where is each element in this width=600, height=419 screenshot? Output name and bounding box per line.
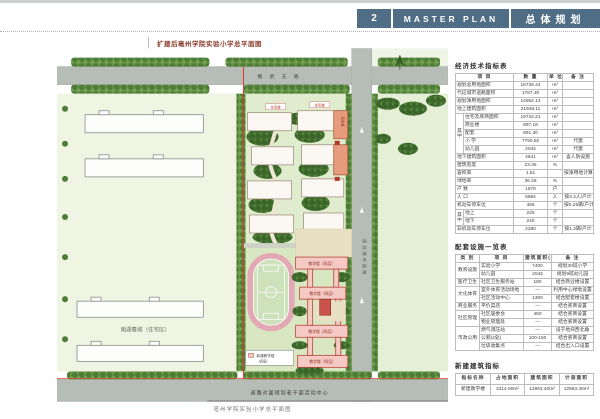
vertical-road: 规划城市道路 [352,49,372,402]
teaching-building-label: 教学楼（四层） [308,261,335,266]
header-title-chinese: 总体规划 [511,9,600,28]
vertical-road-label: 规划城市道路 [361,239,368,276]
page-number-text: 2 [371,13,377,24]
table-row: 商业服务平价菜店—结合底商设置 [456,303,594,311]
table-row: 绿地率36.28% [456,178,594,186]
legend-line2: （四层） [257,358,270,363]
site-plan-drawing: 魏 武 支 路 规划城市道路 道路对面规划老干部活动中心 [57,48,448,402]
drawing-caption: 亳州学院实验小学总平面图 [57,405,448,413]
legend-box: 新建教学楼 （四层） [245,350,293,365]
table-row: 规划总用地面积16739.44m² [456,82,594,90]
commercial-buildings: 商业楼 [334,111,348,181]
teaching-building-label: 教学楼（四层） [309,359,336,364]
table-row: 容积率1.51按净用地计算 [456,170,594,178]
commercial-label: 商业楼 [341,117,346,127]
header-title-en-text: MASTER PLAN [404,14,498,24]
teaching-building-label: 教学楼（四层） [308,329,335,334]
table-row: 机动车停车位465个按0.25辆/户计 [456,202,594,210]
legend-line1: 新建教学楼 [257,353,275,358]
indicator-panel: 经济技术指标表 项 目 数 量 单 位 备 注 规划总用地面积16739.44m… [455,60,597,396]
header-title-cn-text: 总体规划 [526,11,586,26]
site-plan-svg: 魏 武 支 路 规划城市道路 道路对面规划老干部活动中心 [57,48,448,402]
plan-title: 扩建后亳州学院实验小学总平面图 [157,38,262,48]
table-row: 人 口5984人按3.2人/户计 [456,194,594,202]
header-title-english: MASTER PLAN [393,9,509,28]
page: { "header": { "num": "2", "title_en": "M… [0,0,600,419]
table-row: 地下建筑面积4641m²含人防设施 [456,154,594,162]
legend-swatch [248,353,253,357]
table-row: 地上建筑面积21948.11m² [456,106,594,114]
table-row: 户 数1870户 [456,186,594,194]
table-header-row: 类 别 项 目 建筑面积(m²) 备 注 [456,255,594,263]
table-row: 文化体育室外体育活动场地—利用中心绿地设置 [456,287,594,295]
table-row: 新建教学楼 3214.90m² 12963.40m² 12963.40m² [456,385,594,396]
top-road-label: 魏 武 支 路 [257,73,301,80]
table-row: 非机动车停车位2280个按1.2辆/户计 [456,226,594,234]
top-road: 魏 武 支 路 [57,67,448,85]
bottom-road-label: 道路对面规划老干部活动中心 [251,389,329,396]
table-row: 规划净用地面积14952.14m² [456,98,594,106]
eco-table-title: 经济技术指标表 [455,60,597,70]
table-row: 商业楼897.19m² [456,122,594,130]
table-header-row: 项 目 数 量 单 位 备 注 [456,74,594,82]
table-row: 地下240个 [456,218,594,226]
newbuild-table-title: 新建建筑指标 [455,360,597,370]
table-row: 医疗卫生社区卫生服务站180结合商业楼设置 [456,279,594,287]
table-row: 配套891.30m² [456,130,594,138]
dotted-separator [0,31,600,32]
top-gray-strip [0,0,600,3]
teaching-building-label: 教学楼（四层） [309,291,336,296]
bottom-road: 道路对面规划老干部活动中心 [57,379,448,401]
table-row: 小 学7790.92m²代建 [456,138,594,146]
neighbor-area-label: 南湖春城（住宅区） [120,325,170,333]
facilities-table: 类 别 项 目 建筑面积(m²) 备 注 教育设施实验小学7400规划30班小学… [455,254,594,351]
table-row: 社区管理社区居委会450结合底商设置 [456,311,594,319]
newbuild-table: 指标名称 占地面积 建筑面积 计容面积 新建教学楼 3214.90m² 1296… [455,373,594,396]
eco-table: 项 目 数 量 单 位 备 注 规划总用地面积16739.44m² 代征城市道路… [455,73,594,234]
campus-tower [320,299,331,315]
table-row: 教育设施实验小学7400规划30班小学 [456,263,594,271]
north-label: N [405,57,408,62]
residential-label: 住宅楼 [315,102,326,107]
table-row: 幼儿园2042m²代建 [456,146,594,154]
facilities-table-title: 配套设施一览表 [455,241,597,251]
table-row: 其中地上225个 [456,210,594,218]
running-track [247,253,294,331]
header-page-number: 2 [357,9,391,28]
table-row: 市政公用燃气调压站—设于地块西北角 [456,327,594,335]
table-header-row: 指标名称 占地面积 建筑面积 计容面积 [456,374,594,385]
table-row: 其中住宅及底商面积19742.21m² [456,114,594,122]
table-row: 建筑密度23.35% [456,162,594,170]
residential-label: 住宅楼 [270,104,281,109]
table-row: 代征城市道路面积1787.30m² [456,90,594,98]
